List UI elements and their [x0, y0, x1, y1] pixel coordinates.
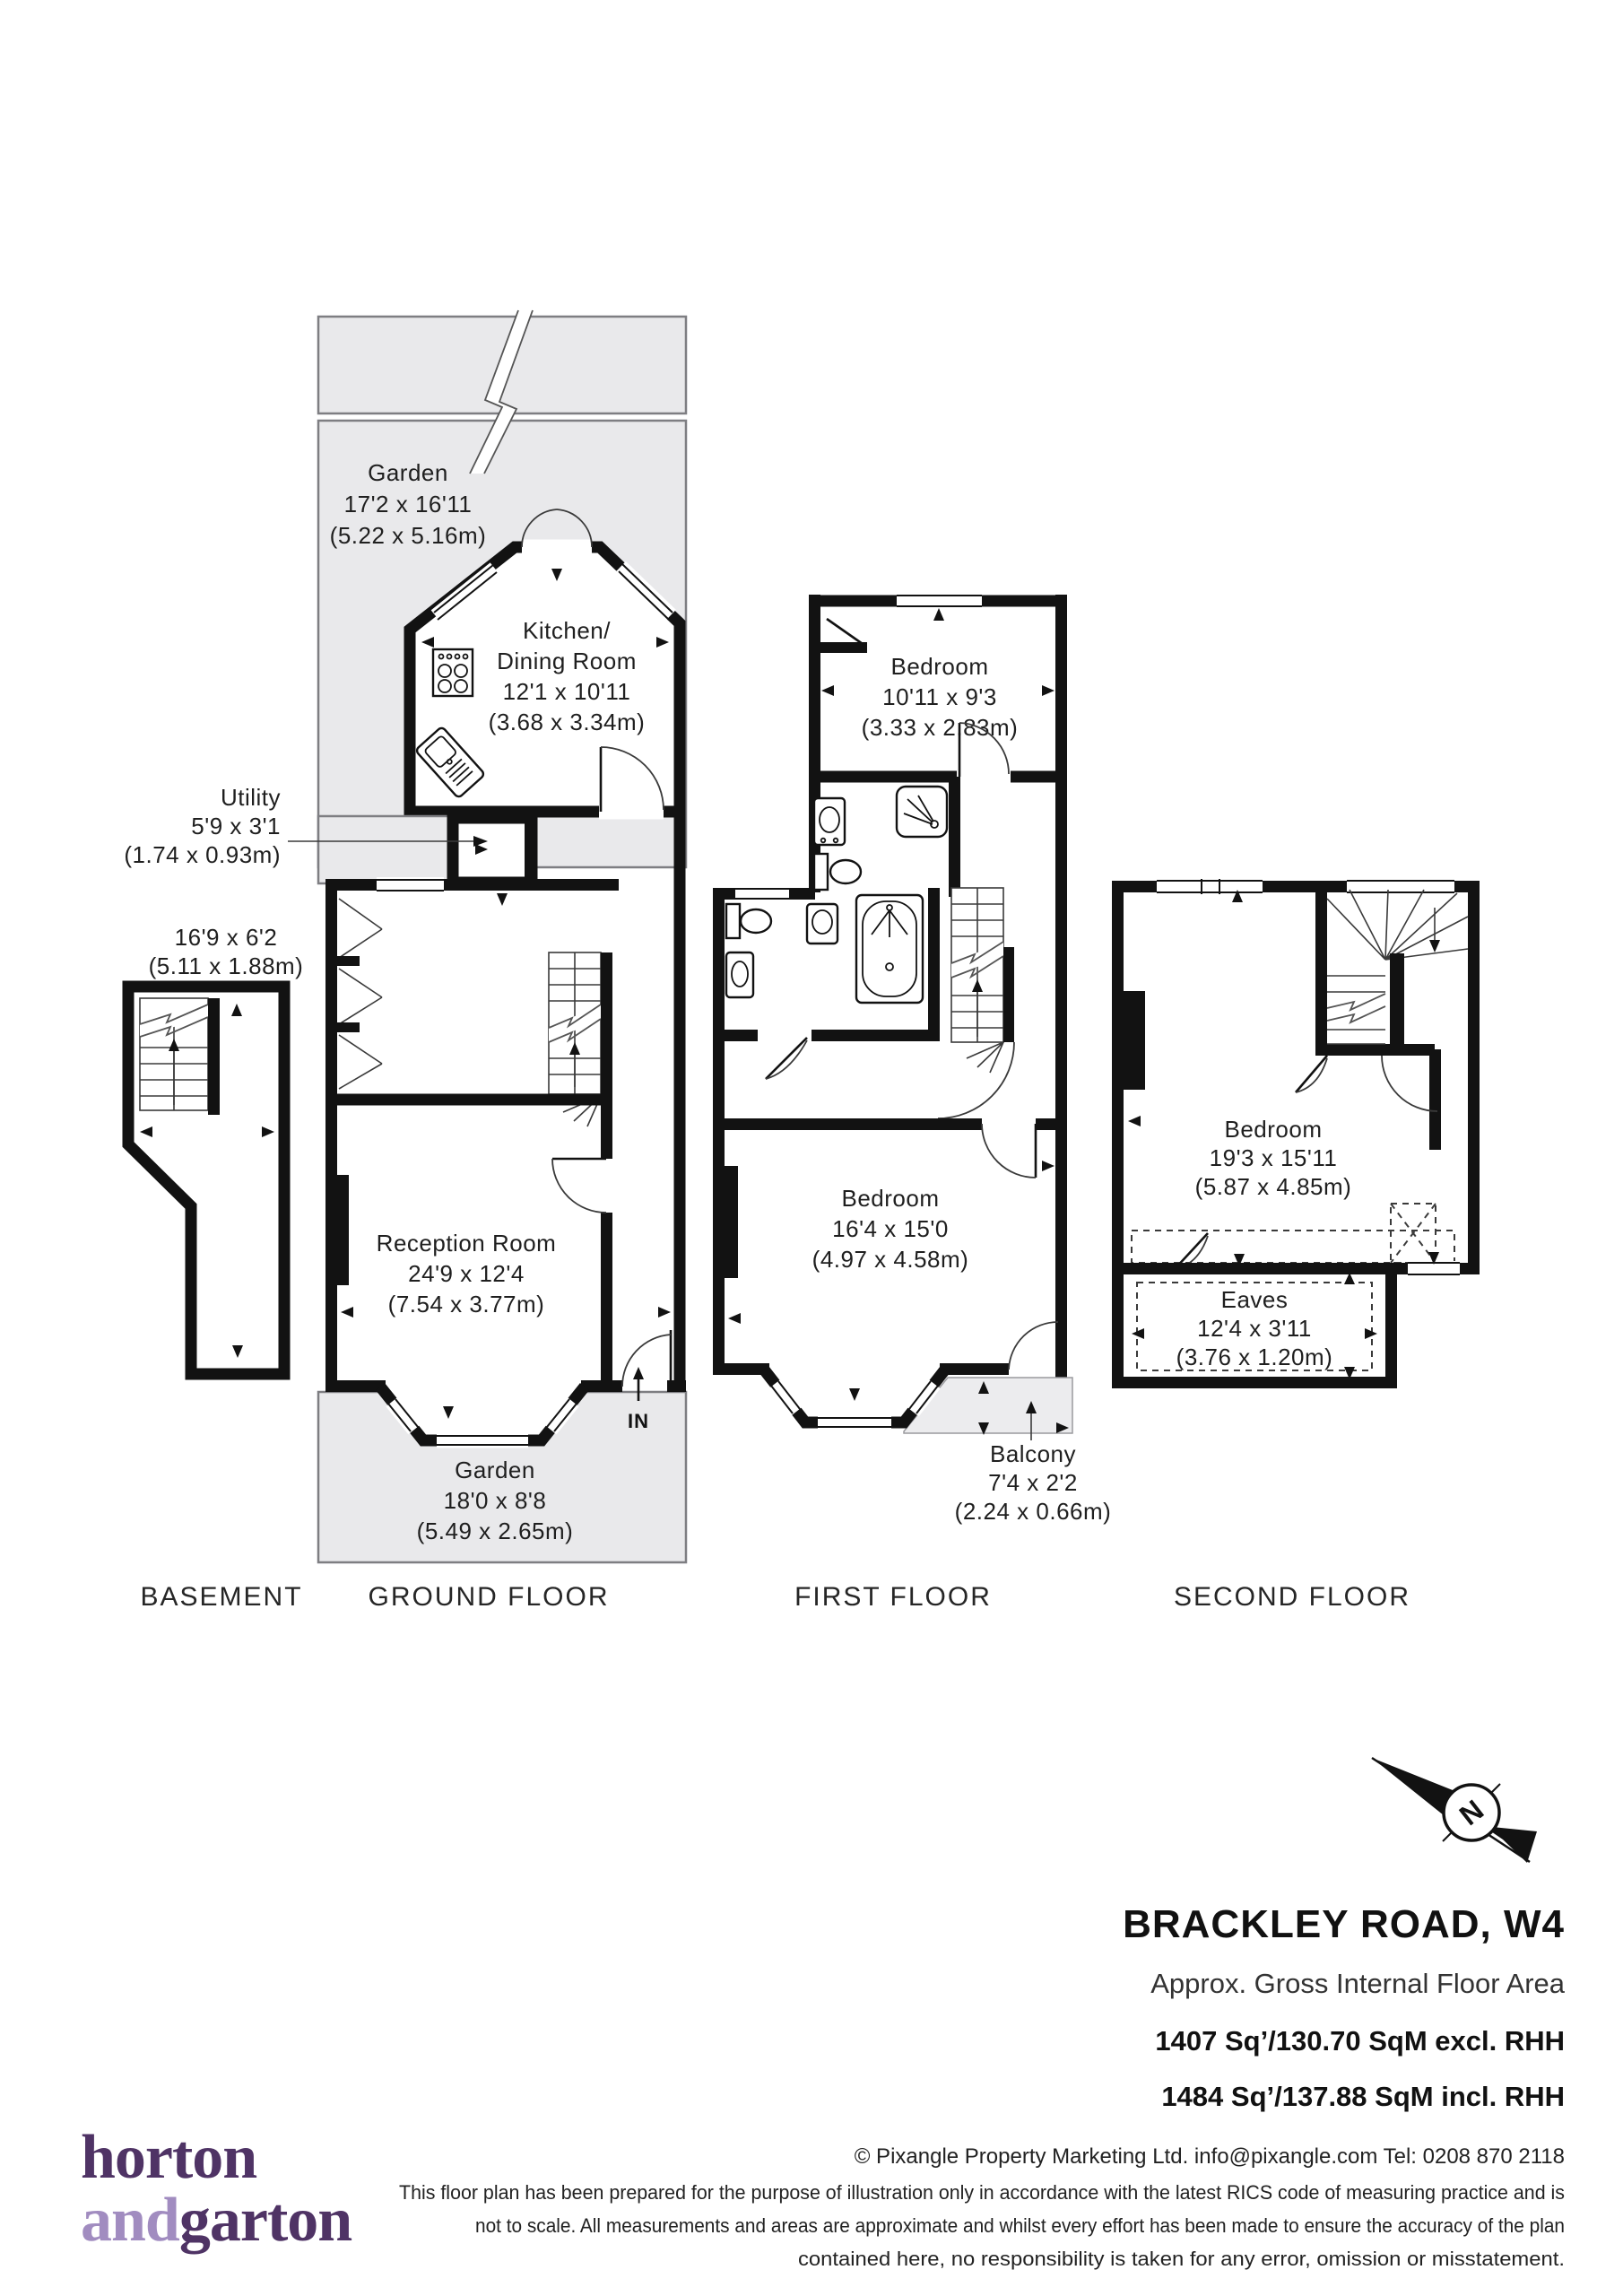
utility-dims-m: (1.74 x 0.93m) — [124, 841, 281, 868]
staircase-basement — [140, 998, 208, 1110]
bath-icon — [856, 895, 923, 1003]
second-floor-plan: Bedroom 19'3 x 15'11 (5.87 x 4.85m) — [1112, 879, 1480, 1388]
disclaimer-line-2: not to scale. All measurements and areas… — [475, 2214, 1565, 2237]
area-incl: 1484 Sq’/137.88 SqM incl. RHH — [1161, 2081, 1565, 2112]
balcony-dims-m: (2.24 x 0.66m) — [955, 1498, 1112, 1525]
bedroom1-dims-ft: 10'11 x 9'3 — [882, 683, 997, 710]
compass-icon: N — [1372, 1758, 1537, 1863]
kitchen-dims-ft: 12'1 x 10'11 — [503, 678, 631, 705]
bedroom3-dims-ft: 19'3 x 15'11 — [1210, 1144, 1338, 1171]
chimney-breast — [325, 1175, 349, 1285]
logo-garton: garton — [179, 2186, 352, 2255]
bedroom3-dims-m: (5.87 x 4.85m) — [1195, 1173, 1352, 1200]
area-heading: Approx. Gross Internal Floor Area — [1150, 1968, 1566, 1999]
chimney-breast — [713, 1166, 738, 1278]
logo-line-2: andgarton — [81, 2186, 352, 2255]
bedroom3-name: Bedroom — [1225, 1116, 1323, 1143]
basement-dims-ft: 16'9 x 6'2 — [175, 924, 278, 951]
eaves-dims-m: (3.76 x 1.20m) — [1176, 1344, 1333, 1370]
reception-name: Reception Room — [377, 1230, 557, 1257]
utility-name: Utility — [221, 784, 281, 811]
first-floor-plan: Bedroom 10'11 x 9'3 (3.33 x 2.83m) — [713, 595, 1111, 1525]
garden-bottom-name: Garden — [455, 1457, 535, 1483]
garden-top-dims-ft: 17'2 x 16'11 — [344, 491, 473, 517]
balcony-name: Balcony — [990, 1440, 1076, 1467]
area-excl: 1407 Sq’/130.70 SqM excl. RHH — [1155, 2025, 1565, 2057]
bedroom1-dims-m: (3.33 x 2.83m) — [862, 714, 1019, 741]
reception-dims-m: (7.54 x 3.77m) — [388, 1291, 545, 1318]
eaves-name: Eaves — [1221, 1286, 1289, 1313]
garden-bottom-dims-m: (5.49 x 2.65m) — [417, 1518, 574, 1544]
utility-dims-ft: 5'9 x 3'1 — [191, 813, 281, 839]
footer: © Pixangle Property Marketing Ltd. info@… — [81, 2123, 1565, 2270]
kitchen-dims-m: (3.68 x 3.34m) — [489, 709, 646, 735]
hob-icon — [433, 649, 473, 696]
floorplan-drawing: Garden 17'2 x 16'11 (5.22 x 5.16m) — [0, 0, 1623, 2296]
eaves-dims-ft: 12'4 x 3'11 — [1197, 1315, 1312, 1342]
agency-logo: horton andgarton — [81, 2123, 352, 2255]
stair-wall — [208, 998, 220, 1115]
basement-dims-m: (5.11 x 1.88m) — [149, 952, 304, 979]
garden-top-dims-m: (5.22 x 5.16m) — [330, 522, 487, 549]
floor-label-first: FIRST FLOOR — [794, 1582, 992, 1612]
bedroom2-dims-m: (4.97 x 4.58m) — [812, 1246, 969, 1273]
basin-icon — [807, 904, 838, 944]
title-block: BRACKLEY ROAD, W4 Approx. Gross Internal… — [1123, 1902, 1566, 2112]
utility-room — [453, 818, 532, 883]
disclaimer-line-3: contained here, no responsibility is tak… — [798, 2248, 1565, 2270]
floor-label-ground: GROUND FLOOR — [368, 1582, 609, 1612]
chimney-breast — [1118, 991, 1145, 1090]
garden-top-name: Garden — [368, 459, 448, 486]
floorplan-page: Garden 17'2 x 16'11 (5.22 x 5.16m) — [0, 0, 1623, 2296]
kitchen-name-2: Dining Room — [497, 648, 637, 674]
logo-and: and — [81, 2186, 180, 2255]
shower-icon — [897, 787, 947, 837]
kitchen-name-1: Kitchen/ — [523, 617, 611, 644]
disclaimer-line-1: This floor plan has been prepared for th… — [399, 2181, 1565, 2204]
entrance-label: IN — [628, 1410, 649, 1432]
basin-icon — [814, 798, 845, 845]
reception-dims-ft: 24'9 x 12'4 — [408, 1260, 525, 1287]
basin-icon — [726, 952, 753, 997]
bedroom2-name: Bedroom — [842, 1185, 940, 1212]
bedroom2-dims-ft: 16'4 x 15'0 — [832, 1215, 949, 1242]
basement-plan: 16'9 x 6'2 (5.11 x 1.88m) — [128, 924, 303, 1374]
property-address: BRACKLEY ROAD, W4 — [1123, 1902, 1565, 1946]
floor-label-basement: BASEMENT — [140, 1582, 302, 1612]
credit-line: © Pixangle Property Marketing Ltd. info@… — [855, 2144, 1565, 2169]
logo-line-1: horton — [81, 2123, 256, 2192]
balcony-dims-ft: 7'4 x 2'2 — [988, 1469, 1078, 1496]
garden-bottom-dims-ft: 18'0 x 8'8 — [444, 1487, 547, 1514]
bedroom1-name: Bedroom — [891, 653, 989, 680]
floor-label-second: SECOND FLOOR — [1174, 1582, 1410, 1612]
side-return-area — [318, 816, 451, 883]
